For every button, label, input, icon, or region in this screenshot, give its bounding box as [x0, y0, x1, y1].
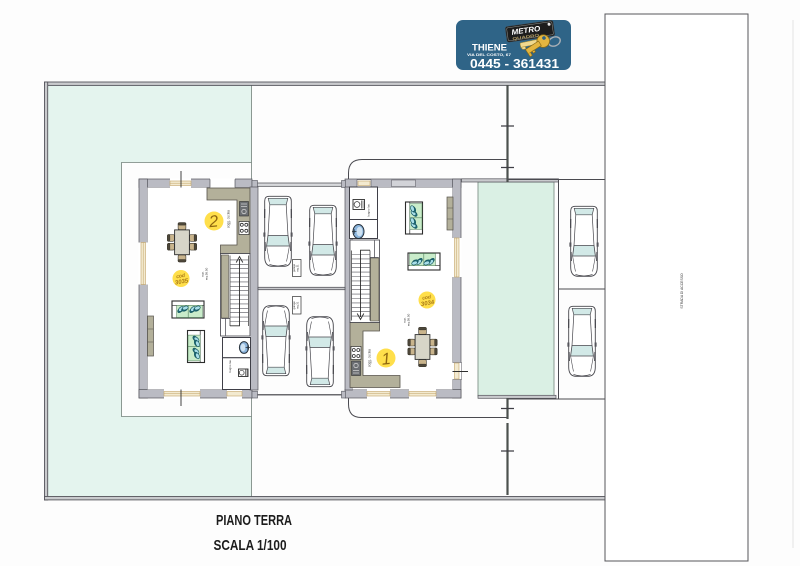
svg-text:sogg. cucina: sogg. cucina — [368, 349, 372, 367]
svg-text:mq.58.50: mq.58.50 — [407, 313, 411, 326]
svg-text:STRADA DI ACCESSO: STRADA DI ACCESSO — [680, 273, 684, 309]
svg-text:bagno lav.: bagno lav. — [367, 203, 371, 216]
svg-text:mq.31: mq.31 — [296, 264, 300, 272]
svg-text:SCALA 1/100: SCALA 1/100 — [214, 537, 287, 554]
svg-text:2: 2 — [207, 212, 219, 231]
svg-text:mq.31: mq.31 — [296, 301, 300, 309]
svg-text:0445 - 361431: 0445 - 361431 — [470, 56, 559, 71]
svg-text:mq.58.50: mq.58.50 — [205, 267, 209, 280]
svg-text:sogg. cucina: sogg. cucina — [227, 210, 231, 228]
svg-text:garage: garage — [292, 263, 296, 272]
svg-text:bagno lav.: bagno lav. — [228, 359, 232, 372]
svg-text:garage: garage — [292, 301, 296, 310]
svg-text:1: 1 — [381, 350, 392, 369]
svg-text:PIANO TERRA: PIANO TERRA — [216, 512, 292, 529]
